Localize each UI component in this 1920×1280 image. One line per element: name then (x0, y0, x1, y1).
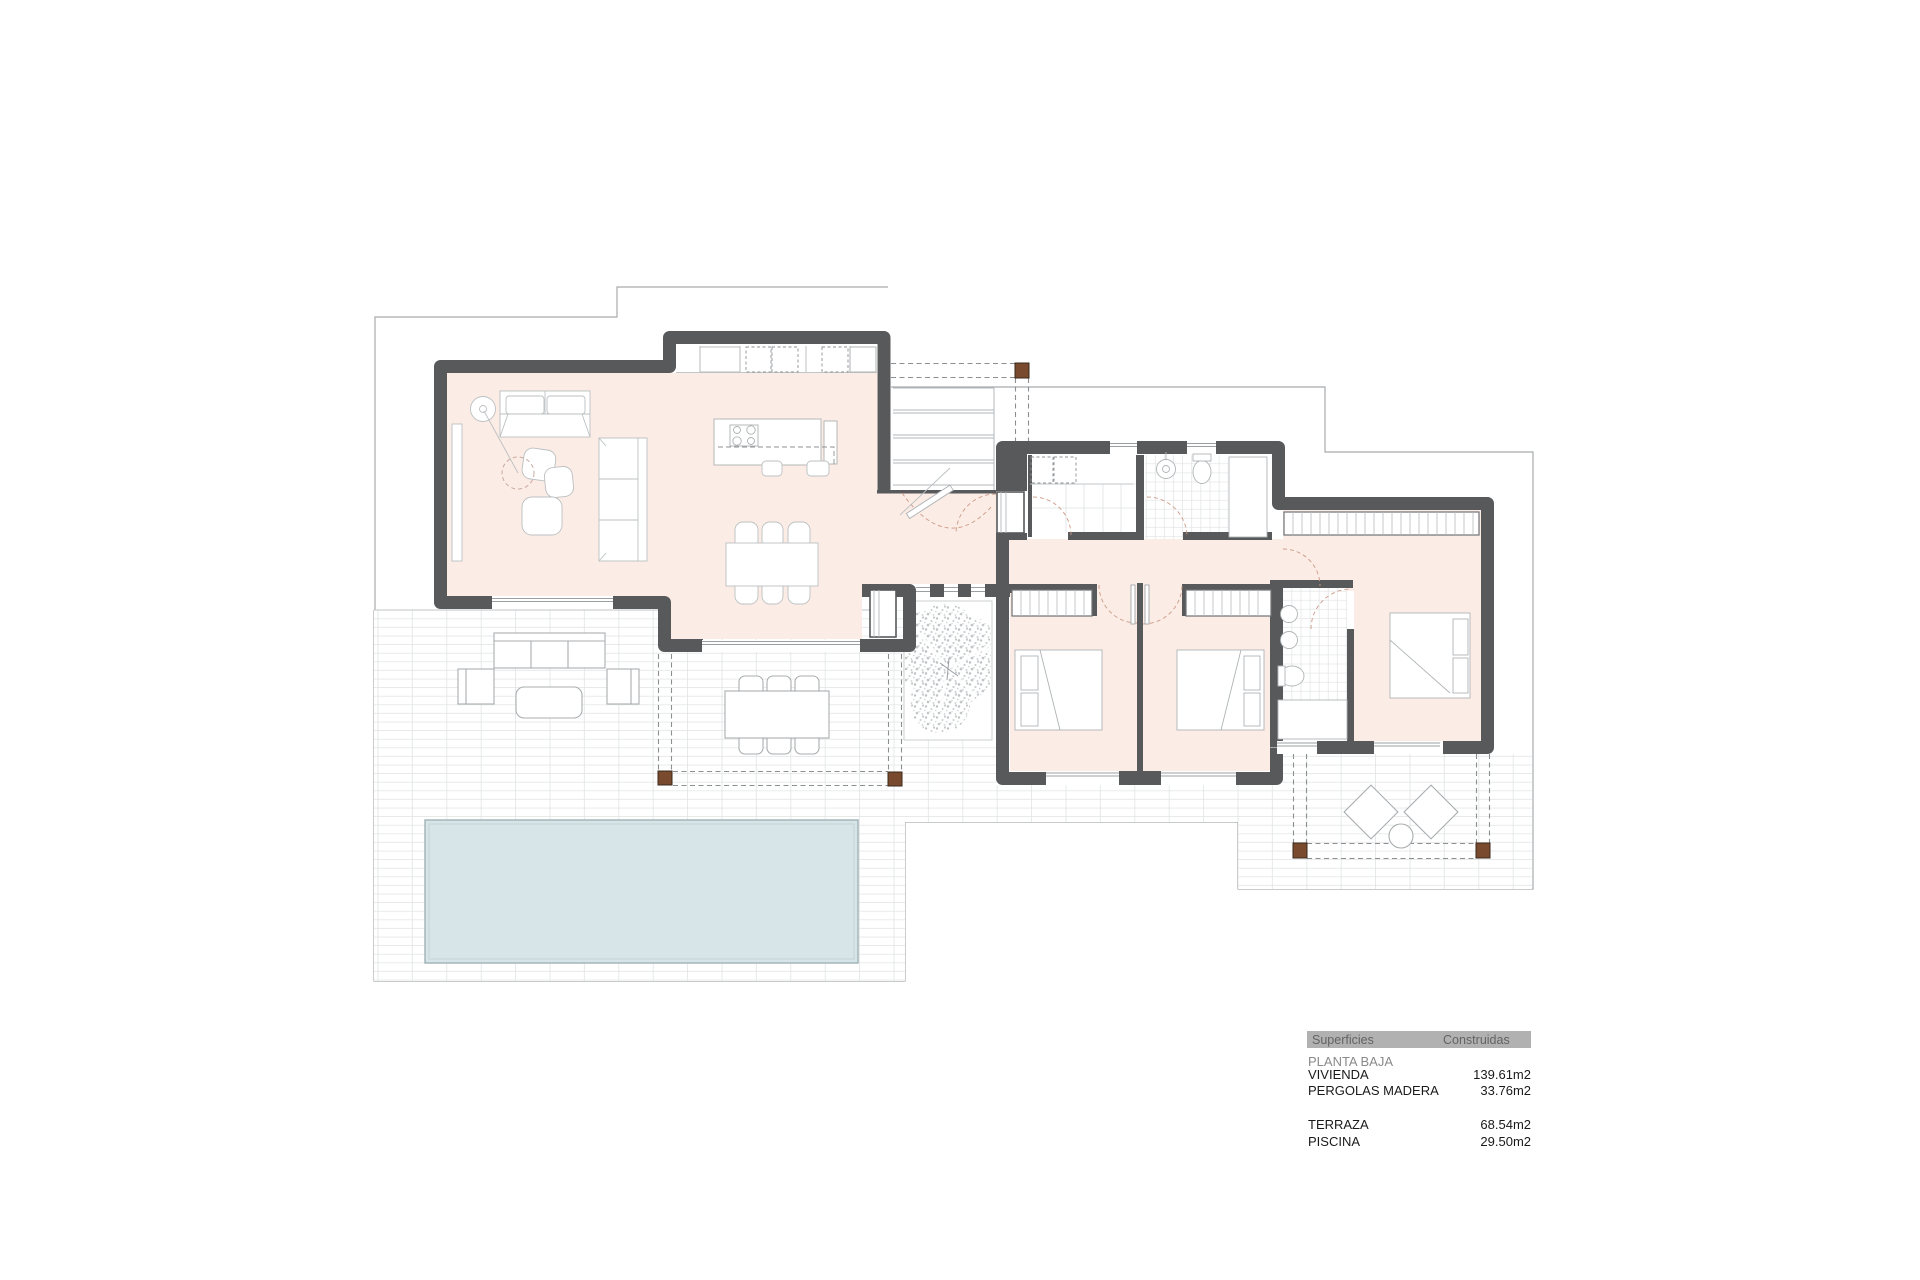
svg-text:29.50m2: 29.50m2 (1480, 1134, 1531, 1149)
svg-text:139.61m2: 139.61m2 (1473, 1067, 1531, 1082)
svg-text:33.76m2: 33.76m2 (1480, 1083, 1531, 1098)
svg-text:PISCINA: PISCINA (1308, 1134, 1360, 1149)
svg-text:TERRAZA: TERRAZA (1308, 1117, 1369, 1132)
svg-text:VIVIENDA: VIVIENDA (1308, 1067, 1369, 1082)
svg-text:68.54m2: 68.54m2 (1480, 1117, 1531, 1132)
svg-text:Superficies: Superficies (1312, 1033, 1374, 1047)
svg-text:Construidas: Construidas (1443, 1033, 1510, 1047)
svg-text:PERGOLAS MADERA: PERGOLAS MADERA (1308, 1083, 1439, 1098)
